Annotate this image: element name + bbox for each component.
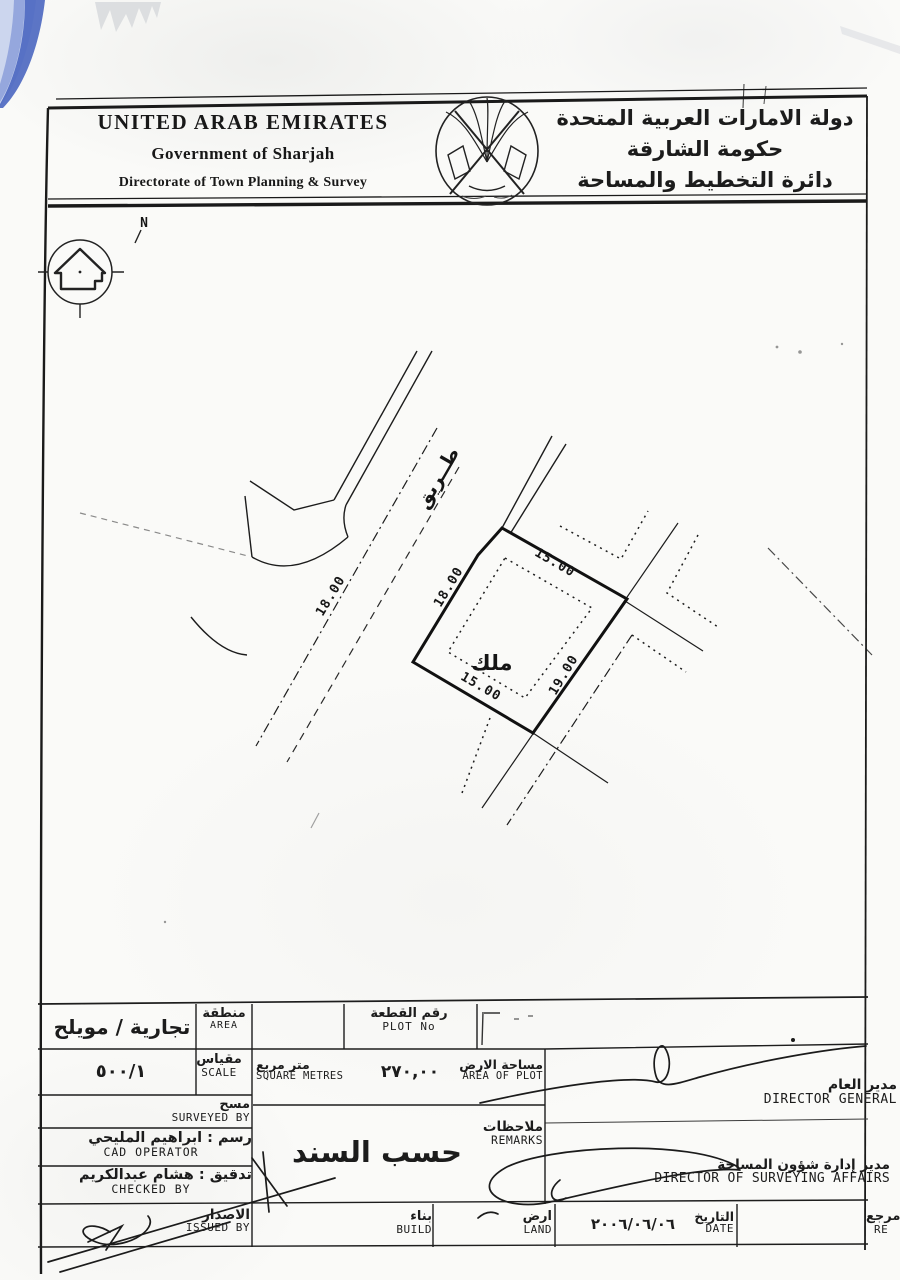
scan-specks: [164, 343, 843, 923]
country-name-ar: دولة الامارات العربية المتحدة: [552, 103, 858, 134]
cad-operator-row: رسم : ابراهيم المليحي CAD OPERATOR: [50, 1131, 252, 1158]
area-of-plot-label-en: AREA OF PLOT: [462, 1071, 543, 1082]
plot-boundary: [413, 528, 627, 733]
scan-artifact-gray-smudges: [95, 2, 900, 54]
plot-no-label-en: PLOT No: [382, 1021, 435, 1033]
square-metres-label: متر مربع SQUARE METRES: [256, 1058, 378, 1082]
issued-by-label-ar: الاصدار: [202, 1208, 250, 1222]
area-label-en: AREA: [210, 1021, 238, 1032]
scale-value: ٥٠٠/١: [56, 1053, 186, 1089]
scan-artifact-blue-corner: [0, 0, 45, 108]
area-of-plot-value: ٢٧٠,٠٠: [374, 1058, 446, 1086]
header-english: UNITED ARAB EMIRATES Government of Sharj…: [78, 110, 408, 191]
date-label-en: DATE: [706, 1223, 735, 1235]
remarks-label-ar: ملاحظات: [483, 1120, 543, 1134]
checked-by-name: تدقيق : هشام عبدالكريم: [79, 1168, 252, 1183]
land-label-en: LAND: [524, 1224, 553, 1236]
road-width-dim: 18.00: [313, 573, 349, 619]
issued-by-label: الاصدار ISSUED BY: [140, 1208, 250, 1234]
road-name-label: طــريق: [412, 444, 465, 513]
handwritten-mark-plot-no: [482, 1012, 533, 1045]
cad-operator-name: رسم : ابراهيم المليحي: [88, 1131, 252, 1146]
remarks-label-en: REMARKS: [491, 1134, 543, 1146]
scale-label-en: SCALE: [201, 1067, 237, 1079]
checked-by-label-en: CHECKED BY: [111, 1183, 190, 1195]
director-general-label: مدير العام DIRECTOR GENERAL: [745, 1078, 897, 1106]
land-label: ارض LAND: [468, 1210, 552, 1235]
directorate-name-ar: دائرة التخطيط والمساحة: [552, 165, 858, 196]
reference-label-ar: مرجع: [866, 1210, 900, 1224]
build-label-en: BUILD: [396, 1224, 432, 1236]
director-surveying-label: مدير إدارة شؤون المساحة DIRECTOR OF SURV…: [648, 1158, 890, 1186]
scanned-survey-document: { "colors": { "ink": "#1c1c1c", "blue_ar…: [0, 0, 900, 1280]
scale-label: مقياس SCALE: [188, 1053, 250, 1078]
surveyed-by-label-ar: مسح: [219, 1098, 250, 1112]
director-general-label-ar: مدير العام: [828, 1078, 897, 1093]
remarks-label: ملاحظات REMARKS: [448, 1120, 543, 1146]
area-value: تجارية / مويلح: [48, 1008, 196, 1046]
build-label-ar: بناء: [410, 1210, 432, 1224]
surveyed-by-label-en: SURVEYED BY: [172, 1112, 250, 1124]
square-metres-label-en: SQUARE METRES: [256, 1071, 343, 1082]
country-name-en: UNITED ARAB EMIRATES: [78, 110, 408, 135]
reference-label: مرجع RE: [866, 1210, 900, 1235]
reference-label-en: RE: [874, 1224, 888, 1236]
director-general-label-en: DIRECTOR GENERAL: [764, 1093, 897, 1107]
government-name-ar: حكومة الشارقة: [552, 134, 858, 165]
area-label: منطقة AREA: [197, 1007, 251, 1031]
land-label-ar: ارض: [523, 1210, 552, 1224]
north-label: N: [140, 216, 148, 231]
build-label: بناء BUILD: [340, 1210, 432, 1235]
date-value: ٢٠٠٦/٠٦/٠٦: [580, 1212, 686, 1236]
plot-dim-top: 15.00: [532, 545, 578, 580]
road-dashed-lines: [80, 467, 459, 762]
checked-by-row: تدقيق : هشام عبدالكريم CHECKED BY: [50, 1168, 252, 1195]
plot-no-label-ar: رقم القطعة: [370, 1007, 447, 1021]
plot-no-value: [253, 1008, 343, 1044]
issued-by-label-en: ISSUED BY: [186, 1222, 250, 1234]
uae-emblem: [436, 97, 538, 205]
north-compass: [38, 230, 141, 318]
director-surveying-label-ar: مدير إدارة شؤون المساحة: [717, 1158, 890, 1172]
road-centerlines: [256, 428, 872, 825]
surveyed-by-label: مسح SURVEYED BY: [150, 1098, 250, 1123]
area-of-plot-label: مساحة الارض AREA OF PLOT: [446, 1058, 543, 1082]
plot-no-label: رقم القطعة PLOT No: [344, 1007, 474, 1032]
header-arabic: دولة الامارات العربية المتحدة حكومة الشا…: [552, 103, 858, 196]
director-surveying-label-en: DIRECTOR OF SURVEYING AFFAIRS: [654, 1172, 890, 1186]
scale-label-ar: مقياس: [196, 1053, 242, 1067]
date-label: التاريخ DATE: [686, 1210, 734, 1235]
plot-ownership-label: ملك: [471, 651, 512, 675]
cad-operator-label-en: CAD OPERATOR: [103, 1146, 198, 1158]
government-name-en: Government of Sharjah: [78, 144, 408, 164]
directorate-name-en: Directorate of Town Planning & Survey: [78, 175, 408, 191]
area-label-ar: منطقة: [202, 1007, 245, 1021]
